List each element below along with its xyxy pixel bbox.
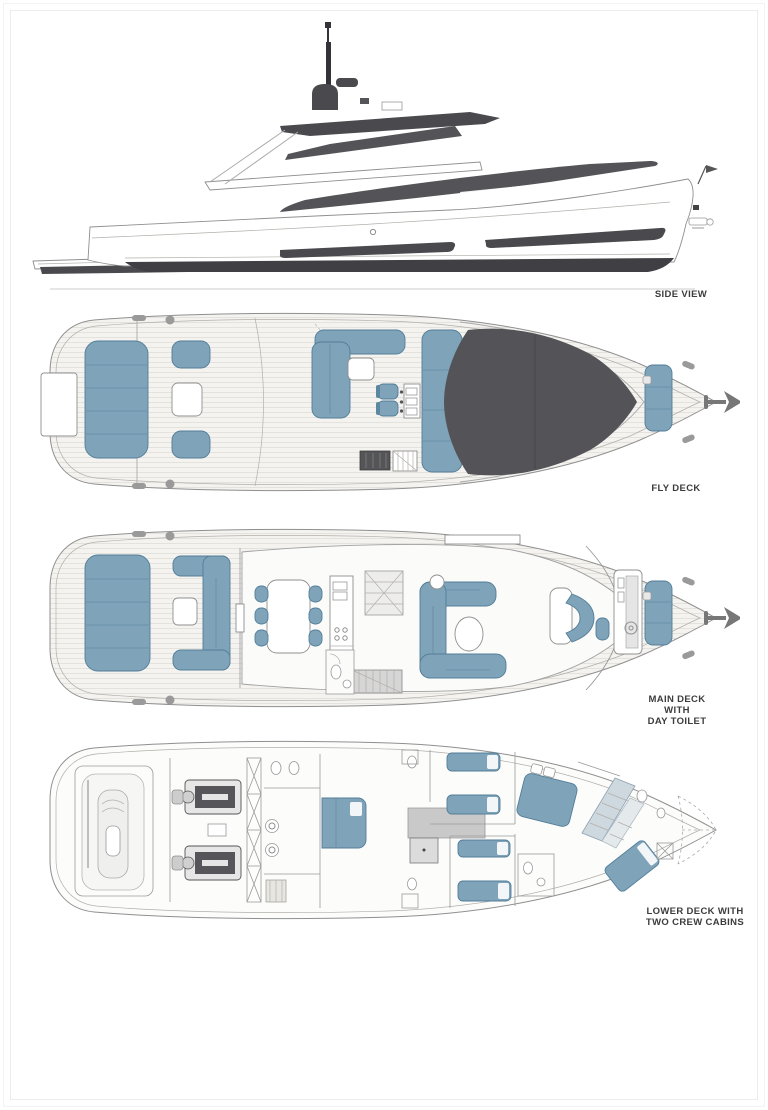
sideboard xyxy=(445,535,520,544)
tender-garage xyxy=(75,766,153,896)
crew-cabin-bed xyxy=(322,798,366,848)
main-deck-figure: MAIN DECK WITH DAY TOILET xyxy=(30,526,740,710)
side-view-label: SIDE VIEW xyxy=(600,289,762,300)
guest-wc-2 xyxy=(408,878,417,890)
bow-vent xyxy=(693,205,699,210)
side-view-drawing xyxy=(30,14,720,294)
anchor-icon xyxy=(689,218,713,228)
aft-sunpad xyxy=(85,341,148,458)
stairs-up xyxy=(365,571,403,615)
side-view-figure: SIDE VIEW xyxy=(30,14,720,294)
lower-deck-figure: LOWER DECK WITH TWO CREW CABINS xyxy=(30,738,740,922)
generator xyxy=(208,824,226,836)
radar-dome xyxy=(312,84,338,110)
dining-area xyxy=(255,580,322,653)
fly-lounge-table xyxy=(348,358,374,380)
day-toilet xyxy=(326,650,354,694)
anchor-icon xyxy=(704,391,740,413)
cockpit-table xyxy=(173,598,197,625)
main-deck-label-line1: MAIN DECK xyxy=(596,694,758,705)
bow-flagpole xyxy=(698,166,706,184)
windshield-glass xyxy=(444,329,637,476)
radar-bar xyxy=(336,78,358,87)
bulkhead-ladder xyxy=(247,758,261,902)
flybridge xyxy=(205,102,500,190)
main-deck-label-line2: WITH xyxy=(596,705,758,716)
ottoman xyxy=(596,618,609,640)
helm-station xyxy=(614,570,642,654)
fly-stairs xyxy=(393,451,417,471)
bow-seat xyxy=(645,581,672,645)
saloon-door xyxy=(236,604,244,632)
main-deck-drawing xyxy=(30,526,740,710)
side-table xyxy=(430,575,444,589)
fly-deck-label: FLY DECK xyxy=(595,483,757,494)
forward-wc xyxy=(657,808,665,818)
bow-pennant xyxy=(706,165,718,173)
bow-sunpad xyxy=(645,365,672,431)
guest-wc xyxy=(408,756,417,768)
lower-deck-label: LOWER DECK WITH TWO CREW CABINS xyxy=(614,906,768,928)
main-deck-label: MAIN DECK WITH DAY TOILET xyxy=(596,694,758,727)
forward-sink xyxy=(637,790,647,802)
brochure-page: { "page": { "background": "#ffffff" }, "… xyxy=(0,0,768,1110)
stairs-down xyxy=(352,670,402,693)
side-view-label-text: SIDE VIEW xyxy=(655,289,707,300)
main-deck-label-line3: DAY TOILET xyxy=(596,716,758,727)
crew-wc xyxy=(271,762,281,775)
lower-deck-drawing xyxy=(30,738,740,922)
crew-sink xyxy=(289,762,299,775)
coffee-table xyxy=(455,617,483,651)
aft-sunpad xyxy=(85,555,150,671)
flybridge-box xyxy=(382,102,402,110)
lower-deck-label-line1: LOWER DECK WITH xyxy=(614,906,768,917)
fly-deck-figure: FLY DECK xyxy=(30,310,740,494)
mast-radar xyxy=(312,22,369,110)
lower-deck-label-line2: TWO CREW CABINS xyxy=(614,917,768,928)
galley xyxy=(330,576,353,653)
stern-platform xyxy=(41,373,77,436)
anchor-icon xyxy=(704,607,740,629)
fly-deck-drawing xyxy=(30,310,740,494)
fly-deck-label-text: FLY DECK xyxy=(651,483,700,494)
grill xyxy=(360,451,390,470)
aft-table xyxy=(172,383,202,416)
